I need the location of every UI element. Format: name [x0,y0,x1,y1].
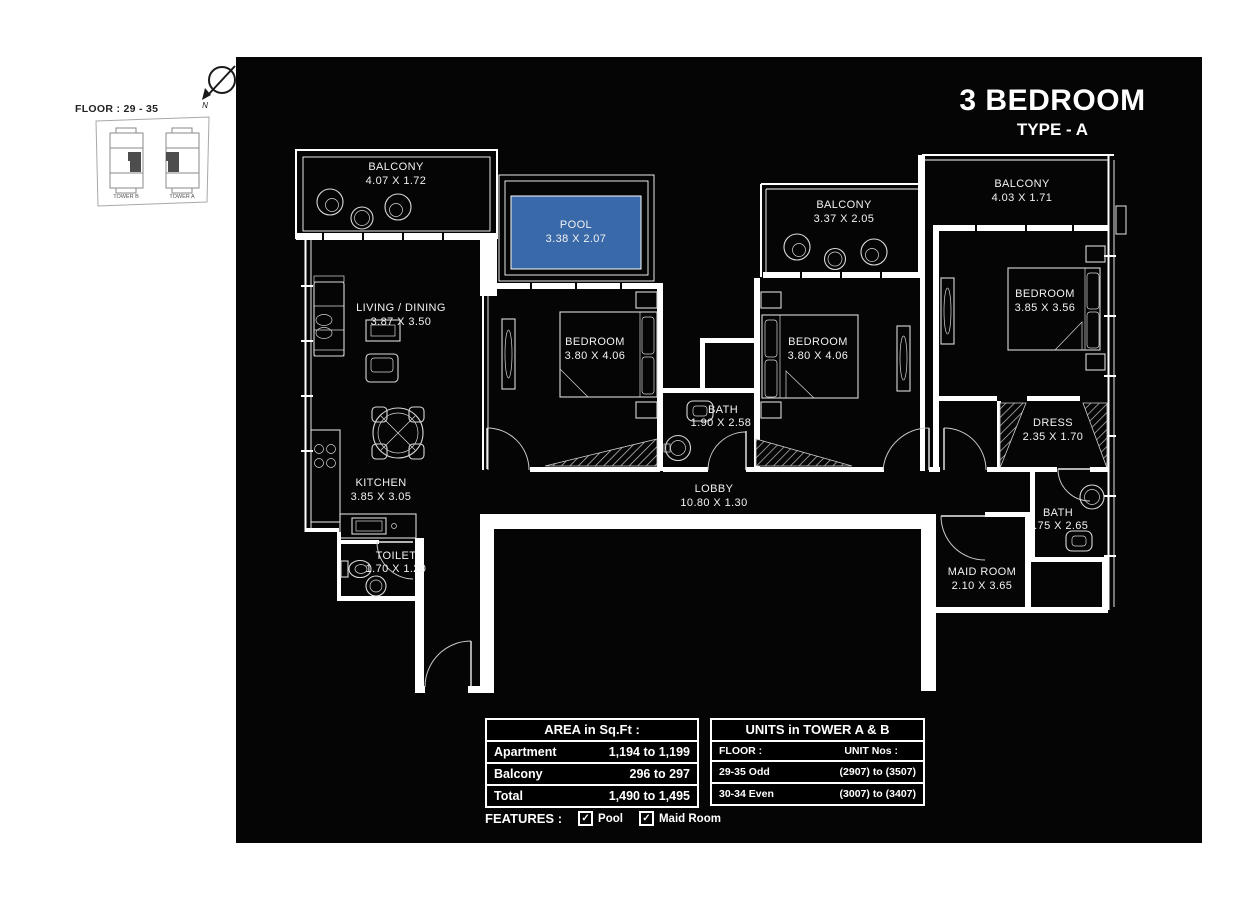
bedroom-1-label: BEDROOM [565,336,625,348]
area-row-total-label: Total [494,789,523,803]
north-indicator: N [202,66,235,110]
units-table-columns: FLOOR : UNIT Nos : [712,742,923,762]
area-row-total: Total 1,490 to 1,495 [487,786,697,806]
features-row: FEATURES : ✓ Pool ✓ Maid Room [485,811,721,826]
units-col-unitnos: UNIT Nos : [844,745,898,757]
north-label: N [202,101,208,110]
units-table: UNITS in TOWER A & B FLOOR : UNIT Nos : … [710,718,925,806]
living-label: LIVING / DINING [356,302,446,314]
maid-room-label: MAID ROOM [948,566,1016,578]
pool-checkbox-icon: ✓ [578,811,593,826]
bedroom-2-dims: 3.80 X 4.06 [788,350,849,362]
lobby-label: LOBBY [695,483,734,495]
area-row-balcony-label: Balcony [494,767,543,781]
maid-room-dims: 2.10 X 3.65 [952,580,1013,592]
feature-maid-room: ✓ Maid Room [639,811,721,826]
area-table-header: AREA in Sq.Ft : [487,720,697,742]
bedroom-3-label: BEDROOM [1015,288,1075,300]
balcony-left-dims: 4.07 X 1.72 [366,175,427,187]
units-row-odd: 29-35 Odd (2907) to (3507) [712,762,923,784]
plan-subtitle: TYPE - A [950,120,1155,140]
area-row-balcony: Balcony 296 to 297 [487,764,697,786]
title-block: 3 BEDROOM TYPE - A [950,84,1155,140]
balcony-right-dims: 4.03 X 1.71 [992,192,1053,204]
area-row-apartment-label: Apartment [494,745,557,759]
units-row-even: 30-34 Even (3007) to (3407) [712,784,923,804]
bath-2-label: BATH [1043,507,1073,519]
toilet-dims: 1.70 X 1.20 [366,563,427,575]
bedroom-2-label: BEDROOM [788,336,848,348]
bath-1-label: BATH [708,404,738,416]
balcony-right-label: BALCONY [994,178,1050,190]
units-row-odd-units: (2907) to (3507) [840,766,916,778]
pool-dims: 3.38 X 2.07 [546,233,607,245]
lobby-dims: 10.80 X 1.30 [680,497,747,509]
floor-plan-sheet: N FLOOR : 29 - 35 TOWER B TOWER A [0,0,1260,900]
key-plan-floor-label: FLOOR : 29 - 35 [75,103,158,115]
living-dims: 3.87 X 3.50 [371,316,432,328]
units-row-odd-floor: 29-35 Odd [719,766,770,778]
maid-room-checkbox-icon: ✓ [639,811,654,826]
units-row-even-units: (3007) to (3407) [840,788,916,800]
area-table: AREA in Sq.Ft : Apartment 1,194 to 1,199… [485,718,699,808]
units-row-even-floor: 30-34 Even [719,788,774,800]
units-col-floor: FLOOR : [719,745,762,757]
tower-a-label: TOWER A [169,194,195,200]
balcony-middle-dims: 3.37 X 2.05 [814,213,875,225]
balcony-middle-label: BALCONY [816,199,872,211]
toilet-label: TOILET [376,550,417,562]
kitchen-label: KITCHEN [355,477,406,489]
bedroom-1-dims: 3.80 X 4.06 [565,350,626,362]
bedroom-3-dims: 3.85 X 3.56 [1015,302,1076,314]
plan-title: 3 BEDROOM [950,84,1155,118]
bath-1-dims: 1.90 X 2.58 [691,417,752,429]
dress-dims: 2.35 X 1.70 [1023,431,1084,443]
feature-pool-label: Pool [598,813,623,825]
area-row-total-value: 1,490 to 1,495 [609,789,690,803]
bath-2-dims: 1.75 X 2.65 [1028,520,1089,532]
tower-b-label: TOWER B [113,194,139,200]
units-table-header: UNITS in TOWER A & B [712,720,923,742]
area-row-balcony-value: 296 to 297 [630,767,690,781]
key-plan: FLOOR : 29 - 35 TOWER B TOWER A [75,103,209,206]
pool-label: POOL [560,219,592,231]
kitchen-dims: 3.85 X 3.05 [351,491,412,503]
balcony-left-label: BALCONY [368,161,424,173]
features-label: FEATURES : [485,811,562,826]
area-row-apartment-value: 1,194 to 1,199 [609,745,690,759]
area-row-apartment: Apartment 1,194 to 1,199 [487,742,697,764]
feature-maid-room-label: Maid Room [659,813,721,825]
feature-pool: ✓ Pool [578,811,623,826]
dress-label: DRESS [1033,417,1073,429]
